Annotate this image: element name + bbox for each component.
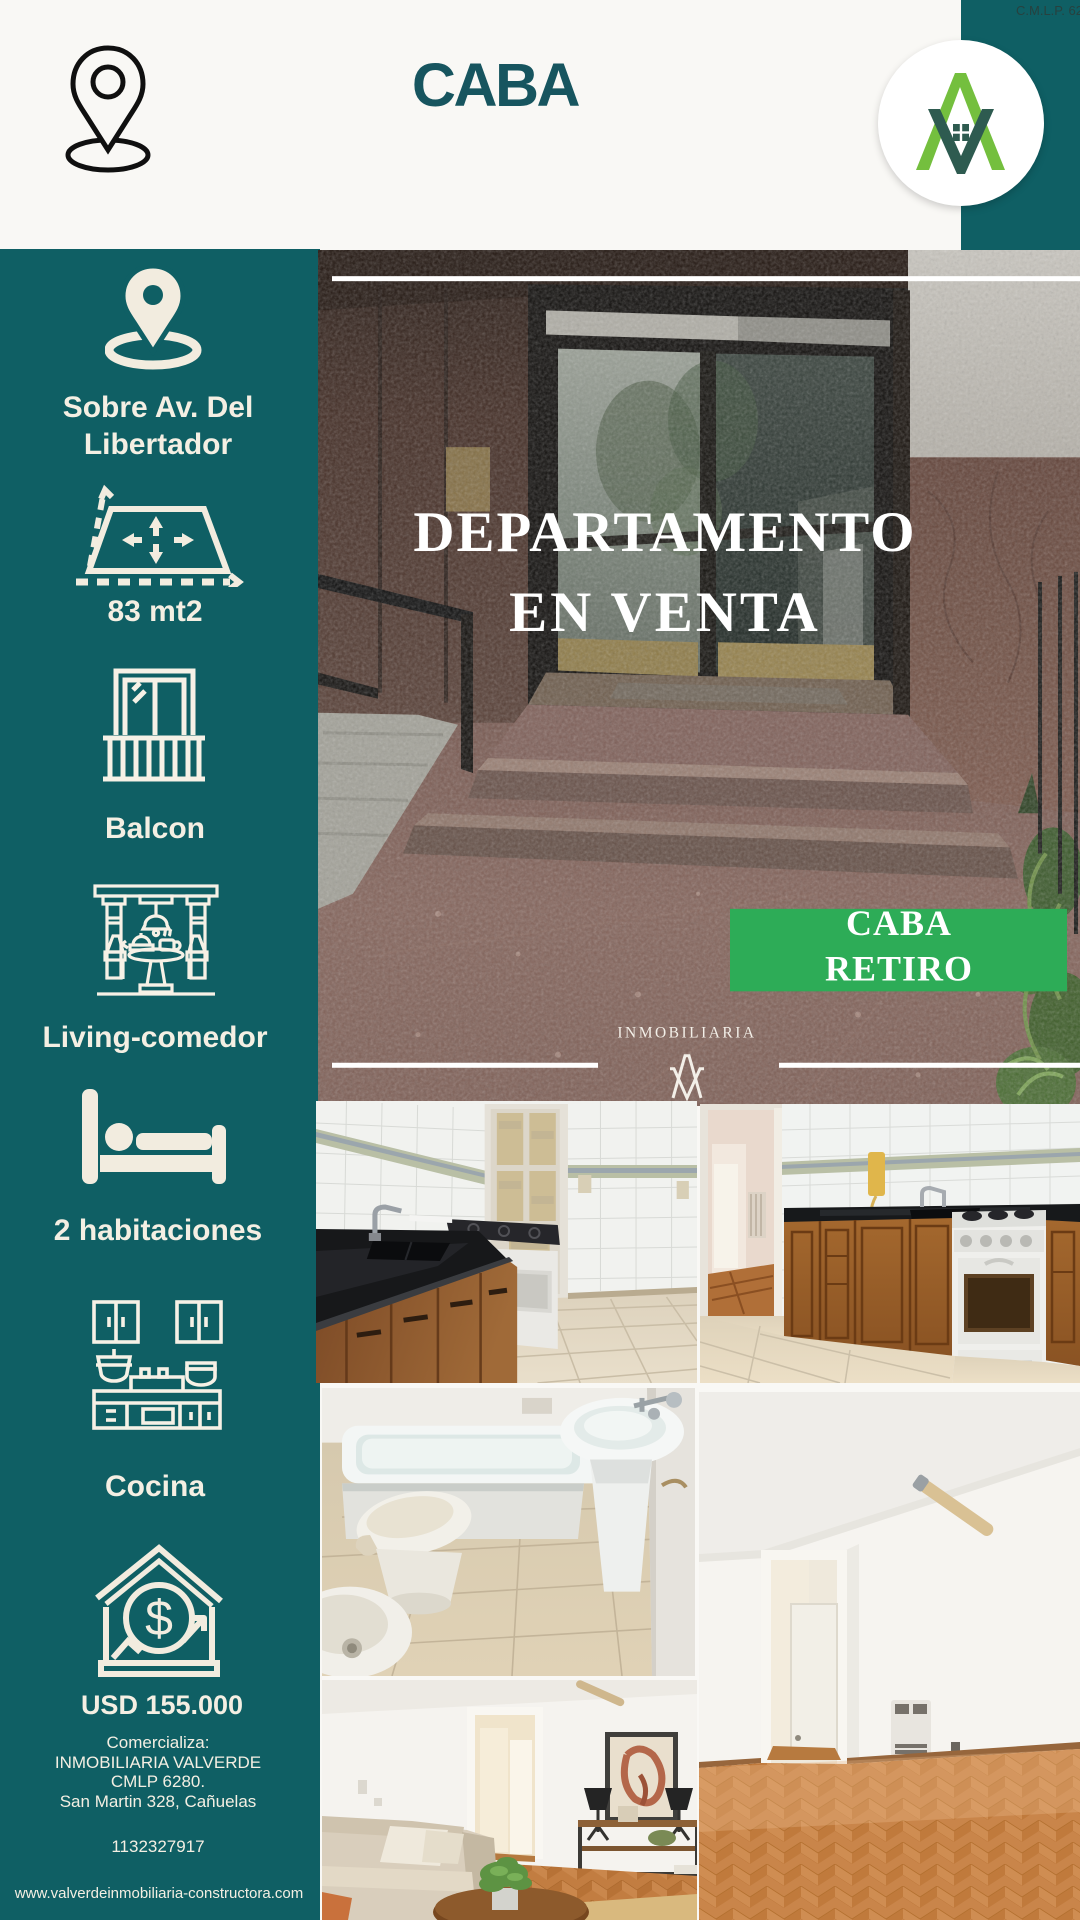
svg-text:EN VENTA: EN VENTA [509, 581, 821, 644]
svg-text:$: $ [145, 1590, 173, 1646]
svg-text:CABA: CABA [846, 903, 952, 943]
svg-text:DEPARTAMENTO: DEPARTAMENTO [413, 501, 916, 564]
svg-text:RETIRO: RETIRO [825, 948, 973, 988]
svg-text:INMOBILIARIA: INMOBILIARIA [617, 1025, 756, 1042]
